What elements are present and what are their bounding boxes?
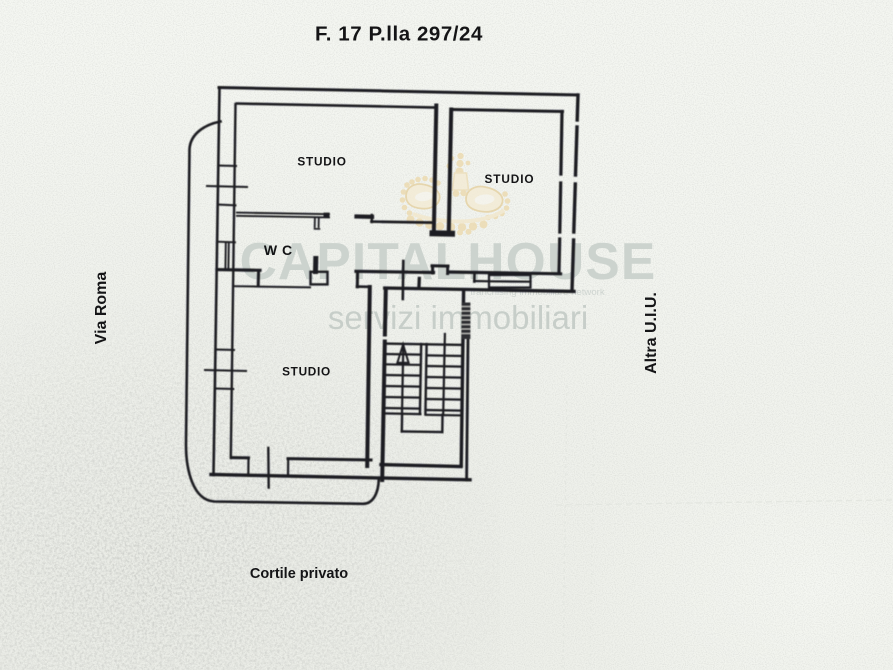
svg-text:STUDIO: STUDIO xyxy=(282,365,331,379)
svg-text:servizi immobiliari: servizi immobiliari xyxy=(328,299,588,336)
svg-text:CAPITALHOUSE: CAPITALHOUSE xyxy=(240,232,657,290)
svg-text:Via Roma: Via Roma xyxy=(93,272,110,345)
svg-text:STUDIO: STUDIO xyxy=(297,155,346,169)
svg-text:Cortile privato: Cortile privato xyxy=(250,566,348,582)
svg-text:F. 17 P.lla 297/24: F. 17 P.lla 297/24 xyxy=(315,23,483,46)
svg-text:WC: WC xyxy=(264,242,297,258)
svg-text:Altra U.I.U.: Altra U.I.U. xyxy=(643,292,660,374)
svg-text:STUDIO: STUDIO xyxy=(485,172,535,186)
